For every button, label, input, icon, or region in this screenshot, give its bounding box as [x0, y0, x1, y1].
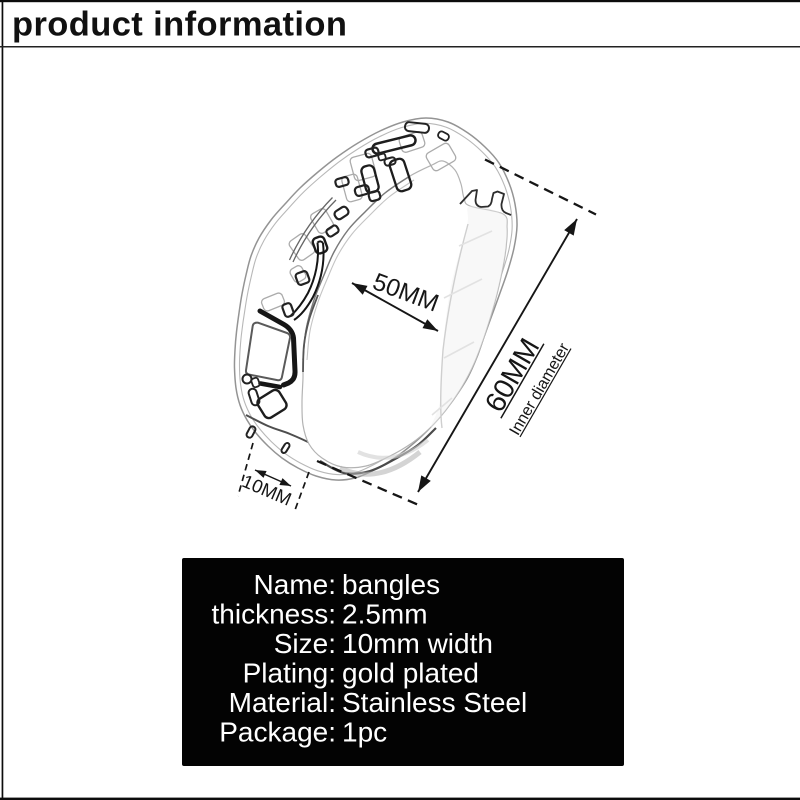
svg-text:Package:: Package: [219, 717, 336, 748]
svg-text:1pc: 1pc [342, 717, 387, 748]
svg-text:thickness:: thickness: [212, 599, 337, 630]
svg-text:gold plated: gold plated [342, 658, 479, 689]
svg-text:product information: product information [12, 6, 347, 44]
svg-text:Stainless Steel: Stainless Steel [342, 687, 527, 718]
svg-text:Material:: Material: [229, 687, 336, 718]
svg-text:Size:: Size: [274, 628, 336, 659]
svg-text:bangles: bangles [342, 569, 440, 600]
svg-text:10mm width: 10mm width [342, 628, 493, 659]
svg-text:Name:: Name: [254, 569, 336, 600]
svg-text:2.5mm: 2.5mm [342, 599, 428, 630]
svg-text:Plating:: Plating: [243, 658, 336, 689]
